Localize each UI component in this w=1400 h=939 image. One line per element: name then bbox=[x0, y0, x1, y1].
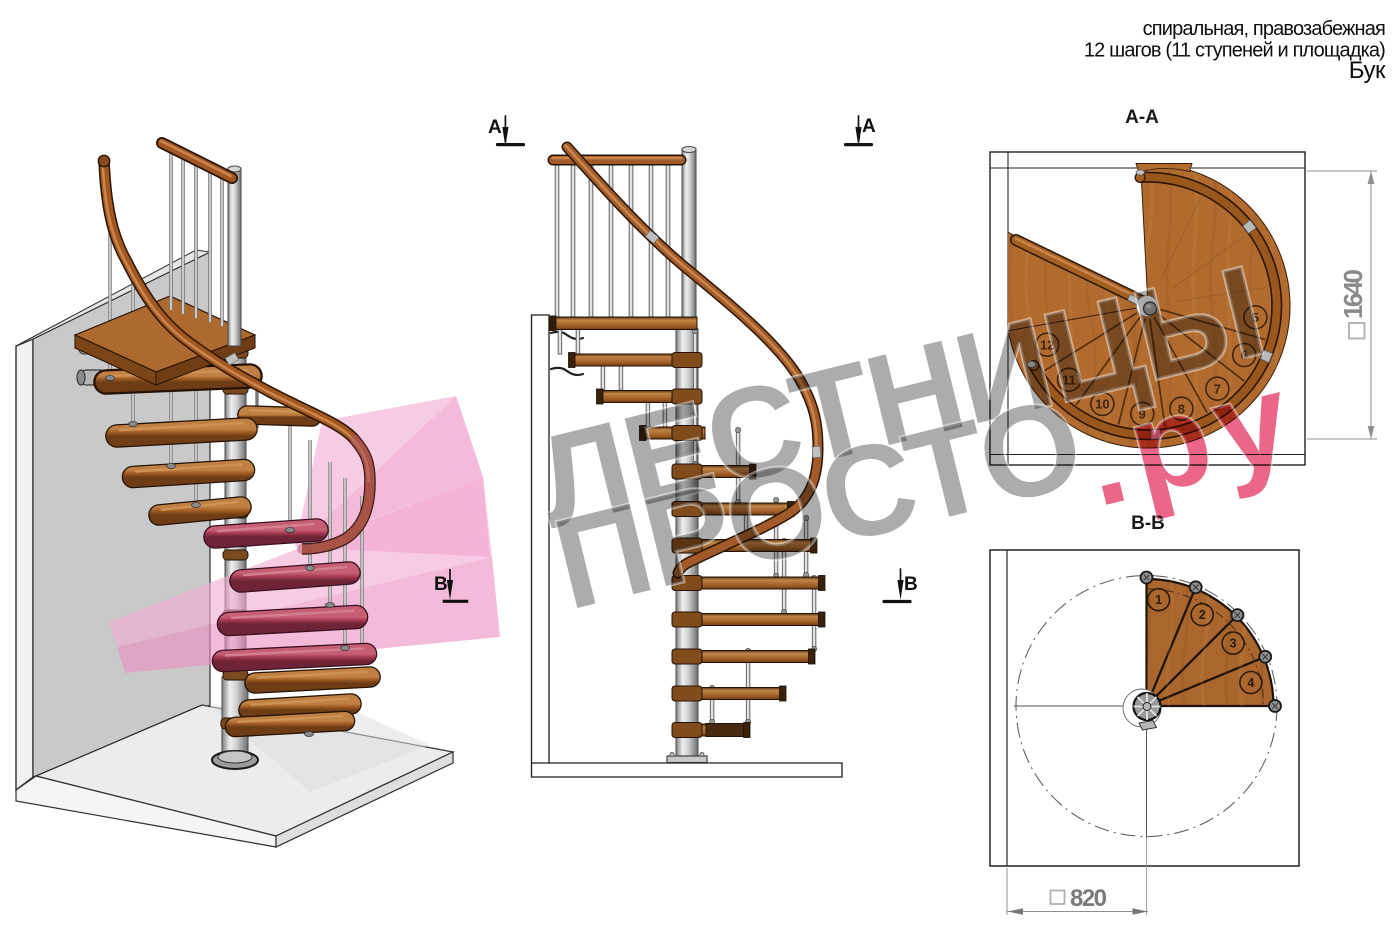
svg-text:1: 1 bbox=[1155, 593, 1162, 607]
svg-text:4: 4 bbox=[1247, 676, 1254, 690]
svg-text:12 шагов (11 ступеней и площад: 12 шагов (11 ступеней и площадка) bbox=[1084, 40, 1385, 62]
svg-text:1640: 1640 bbox=[1338, 269, 1368, 319]
svg-text:Бук: Бук bbox=[1349, 57, 1386, 84]
svg-text:А-А: А-А bbox=[1125, 107, 1159, 128]
svg-text:B: B bbox=[434, 574, 448, 595]
svg-text:2: 2 bbox=[1199, 608, 1206, 622]
svg-text:3: 3 bbox=[1230, 637, 1237, 651]
svg-text:A: A bbox=[488, 117, 502, 138]
svg-text:спиральная, правозабежная: спиральная, правозабежная bbox=[1143, 18, 1385, 40]
svg-text:B: B bbox=[904, 574, 918, 595]
svg-text:820: 820 bbox=[1070, 885, 1107, 912]
svg-text:A: A bbox=[862, 116, 876, 137]
